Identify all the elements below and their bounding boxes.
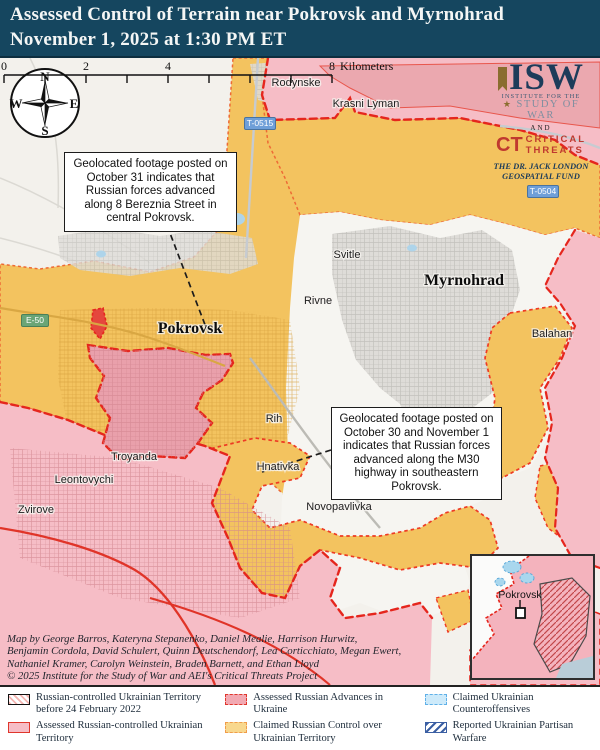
legend-item-pre2022: Russian-controlled Ukrainian Territory b…: [8, 692, 215, 716]
map-credits: Map by George Barros, Kateryna Stepanenk…: [7, 633, 467, 682]
compass-s: S: [41, 123, 48, 138]
isw-ct-logo: ISW INSTITUTE FOR THE ★ STUDY OF WAR AND…: [487, 60, 595, 181]
map-title: Assessed Control of Terrain near Pokrovs…: [10, 4, 504, 26]
credits-line3: Nathaniel Kramer, Carolyn Weinstein, Bra…: [7, 658, 467, 670]
credits-line4: © 2025 Institute for the Study of War an…: [7, 670, 467, 682]
town-zvirove: Zvirove: [18, 504, 54, 516]
road-badge-e50: E-50: [21, 314, 49, 327]
legend-swatch-advances: [225, 694, 247, 705]
compass-e: E: [70, 96, 79, 111]
isw-star-icon: ★: [503, 99, 513, 109]
scale-unit: Kilometers: [340, 59, 394, 73]
town-svitle: Svitle: [334, 249, 361, 261]
scale-bar: 0 2 4 8 Kilometers: [0, 58, 420, 92]
ct-monogram-icon: CT: [496, 136, 523, 154]
legend-item-claimed-control: Claimed Russian Control over Ukrainian T…: [225, 720, 414, 744]
annotation-callout-m30: Geolocated footage posted on October 30 …: [331, 407, 502, 500]
map-subtitle-date: November 1, 2025 at 1:30 PM ET: [10, 29, 286, 51]
logo-and-text: AND: [487, 124, 595, 132]
legend-swatch-assessed-control: [8, 722, 30, 733]
city-pokrovsk: Pokrovsk: [158, 320, 223, 337]
annotation-callout-berezina: Geolocated footage posted on October 31 …: [64, 152, 237, 232]
legend-item-advances: Assessed Russian Advances in Ukraine: [225, 692, 414, 716]
locator-inset-map: Pokrovsk: [470, 554, 595, 680]
legend-item-assessed-control: Assessed Russian-controlled Ukrainian Te…: [8, 720, 215, 744]
map-title-bar: Assessed Control of Terrain near Pokrovs…: [0, 0, 600, 58]
legend-swatch-claimed-control: [225, 722, 247, 733]
city-myrnohrad: Myrnohrad: [424, 272, 504, 289]
scale-0: 0: [1, 59, 7, 73]
scale-8: 8: [329, 59, 335, 73]
town-krasni-lyman: Krasni Lyman: [333, 98, 400, 110]
town-novopavlivka: Novopavlivka: [306, 501, 372, 513]
map-legend: Russian-controlled Ukrainian Territory b…: [0, 685, 600, 750]
town-hnativka: Hnativka: [257, 461, 301, 473]
town-balahan: Balahan: [532, 328, 572, 340]
geospatial-fund-text: THE DR. JACK LONDONGEOSPATIAL FUND: [487, 161, 595, 181]
legend-swatch-counteroffensives: [425, 694, 447, 705]
legend-item-counteroffensives: Claimed Ukrainian Counteroffensives: [425, 692, 594, 716]
isw-wordmark: ISW: [487, 60, 595, 96]
legend-swatch-partisan: [425, 722, 447, 733]
town-rih: Rih: [266, 413, 283, 425]
scale-2: 2: [83, 59, 89, 73]
legend-item-partisan: Reported Ukrainian Partisan Warfare: [425, 720, 594, 744]
credits-line2: Benjamin Cordola, David Schulert, Quinn …: [7, 645, 467, 657]
town-troyanda: Troyanda: [111, 451, 158, 463]
critical-threats-wordmark: CRITICALTHREATS: [526, 134, 586, 156]
town-rivne: Rivne: [304, 295, 332, 307]
legend-swatch-pre2022: [8, 694, 30, 705]
town-leontovychi: Leontovychi: [55, 474, 114, 486]
credits-line1: Map by George Barros, Kateryna Stepanenk…: [7, 633, 467, 645]
isw-map-page: Assessed Control of Terrain near Pokrovs…: [0, 0, 600, 750]
road-badge-t0515: T-0515: [244, 117, 276, 130]
compass-w: W: [10, 96, 23, 111]
road-badge-t0504: T-0504: [527, 185, 559, 198]
isw-study-of-war-text: ★ STUDY OF WAR: [487, 99, 595, 121]
inset-pokrovsk-label: Pokrovsk: [498, 589, 542, 601]
critical-threats-logo: CT CRITICALTHREATS: [487, 134, 595, 156]
isw-banner-icon: [498, 67, 507, 91]
terrain-map: Rodynske Krasni Lyman Svitle Rivne Balah…: [0, 58, 600, 685]
scale-4: 4: [165, 59, 171, 73]
